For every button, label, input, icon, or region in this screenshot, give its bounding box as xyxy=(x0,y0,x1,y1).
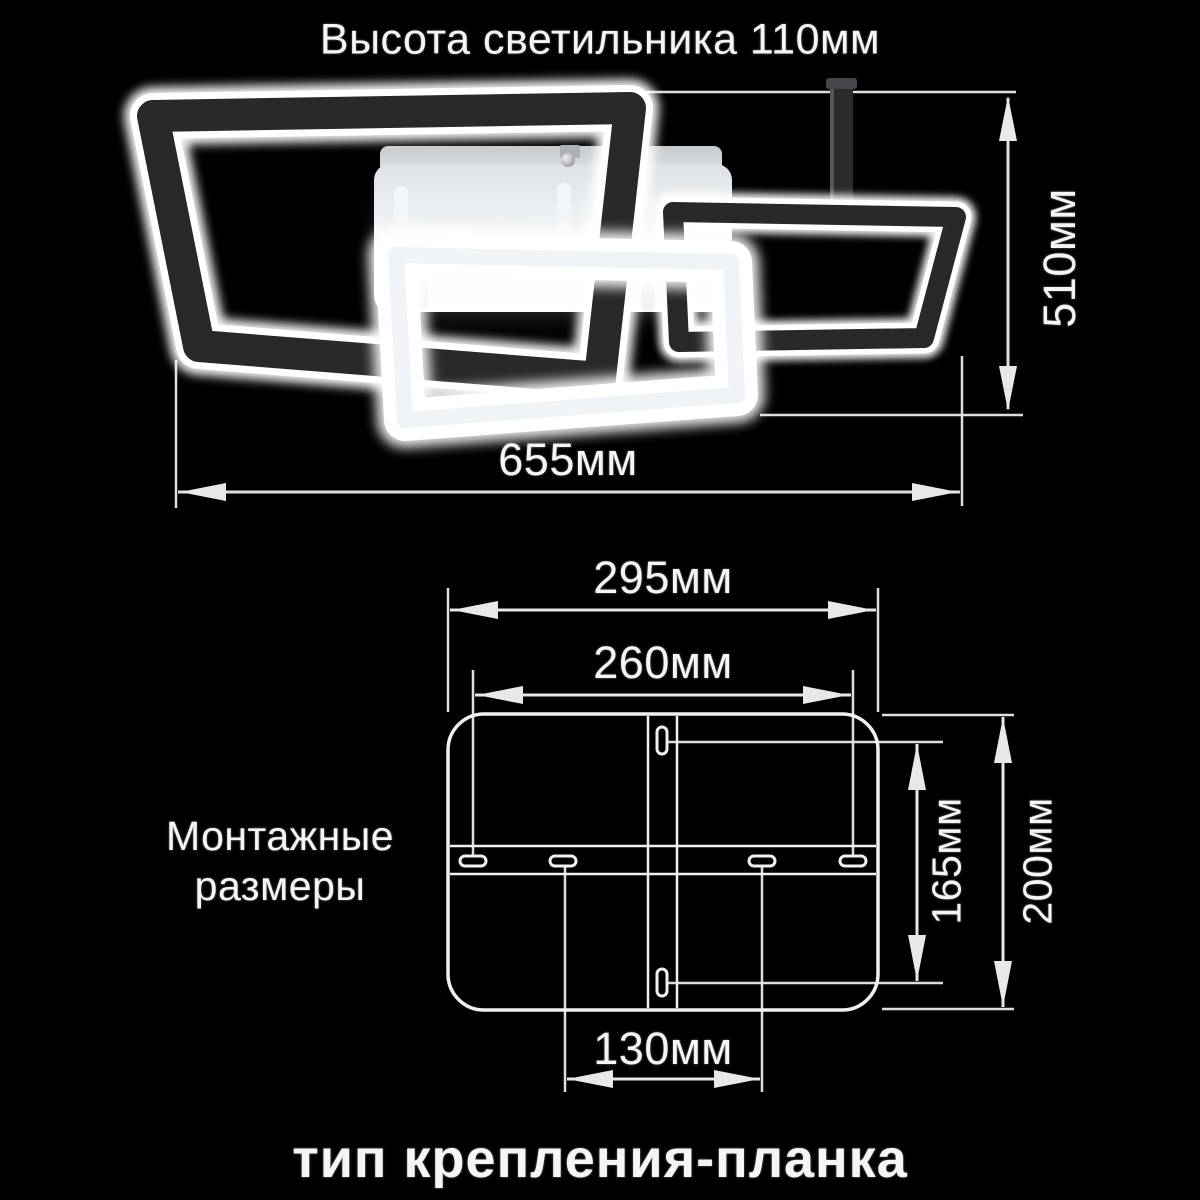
dim-130-label: 130мм xyxy=(593,1023,732,1075)
plate-outline xyxy=(448,714,878,1010)
mounting-caption: Монтажные размеры xyxy=(166,811,394,911)
screw-slots xyxy=(460,727,866,996)
footer-title: тип крепления-планка xyxy=(292,1128,907,1190)
lamp-illustration xyxy=(153,78,956,420)
dim-655-label: 655мм xyxy=(498,434,637,486)
dim-295-label: 295мм xyxy=(593,552,732,604)
screw xyxy=(561,153,575,167)
mounting-caption-line1: Монтажные xyxy=(166,811,394,861)
dim-260-label: 260мм xyxy=(593,637,732,689)
mounting-caption-line2: размеры xyxy=(166,861,394,911)
dim-200-label: 200мм xyxy=(1015,797,1062,924)
dim-510-label: 510мм xyxy=(1034,188,1086,327)
top-title: Высота светильника 110мм xyxy=(320,16,880,65)
dim-165-label: 165мм xyxy=(924,797,971,924)
product-dimension-image: Высота светильника 110мм 655мм 510мм 295… xyxy=(0,0,1200,1200)
